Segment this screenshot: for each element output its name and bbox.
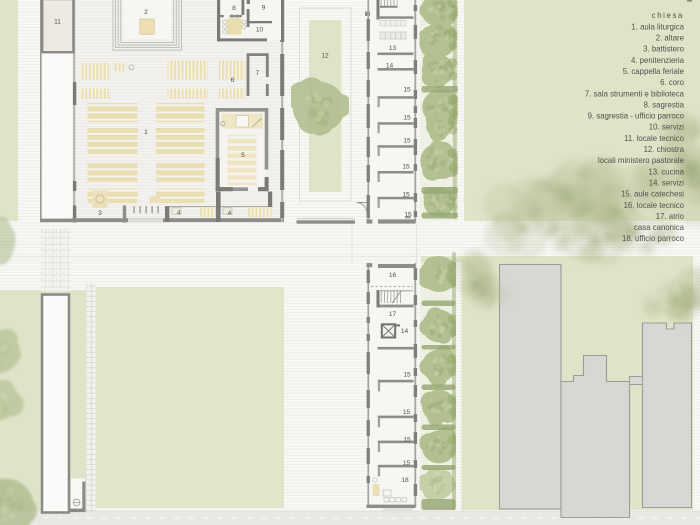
svg-text:6. coro: 6. coro <box>660 78 684 87</box>
svg-text:15: 15 <box>404 212 412 219</box>
svg-text:locali ministero pastorale: locali ministero pastorale <box>598 156 684 165</box>
svg-text:9: 9 <box>262 5 266 12</box>
svg-text:15: 15 <box>402 164 410 171</box>
svg-text:1. aula liturgica: 1. aula liturgica <box>631 22 684 31</box>
svg-text:15: 15 <box>403 115 411 122</box>
svg-text:16. locale tecnico: 16. locale tecnico <box>624 200 685 209</box>
svg-text:casa canonica: casa canonica <box>634 223 684 232</box>
svg-text:13: 13 <box>389 45 397 52</box>
svg-text:12: 12 <box>321 53 329 60</box>
svg-text:15: 15 <box>403 87 411 94</box>
svg-text:15: 15 <box>402 192 410 199</box>
svg-text:3: 3 <box>98 210 102 217</box>
svg-text:4: 4 <box>177 210 181 217</box>
svg-text:18: 18 <box>401 477 409 484</box>
svg-text:7: 7 <box>256 70 260 77</box>
svg-text:13. cucina: 13. cucina <box>648 167 684 176</box>
svg-text:18. ufficio parroco: 18. ufficio parroco <box>622 234 684 243</box>
svg-text:1: 1 <box>144 129 148 136</box>
svg-text:14. servizi: 14. servizi <box>649 178 684 187</box>
svg-text:8: 8 <box>232 5 236 12</box>
svg-text:15: 15 <box>403 436 411 443</box>
svg-text:2: 2 <box>144 9 148 16</box>
svg-text:7. sala strumenti e biblioteca: 7. sala strumenti e biblioteca <box>585 89 684 98</box>
svg-text:9. sagrestia - ufficio parroco: 9. sagrestia - ufficio parroco <box>588 111 685 120</box>
svg-text:12. chiostra: 12. chiostra <box>644 145 685 154</box>
svg-text:15: 15 <box>403 138 411 145</box>
svg-text:11. locale tecnico: 11. locale tecnico <box>624 134 684 143</box>
svg-text:5: 5 <box>241 152 245 159</box>
svg-text:10. servizi: 10. servizi <box>649 122 684 131</box>
svg-text:3. battistero: 3. battistero <box>643 44 684 53</box>
svg-text:8. sagrestia: 8. sagrestia <box>644 100 685 109</box>
svg-text:17: 17 <box>389 311 397 318</box>
svg-text:4: 4 <box>228 210 232 217</box>
svg-text:16: 16 <box>389 272 397 279</box>
svg-text:11: 11 <box>54 19 61 26</box>
svg-text:2. altare: 2. altare <box>656 33 685 42</box>
svg-text:15. aule catechesi: 15. aule catechesi <box>621 189 684 198</box>
svg-text:chiesa: chiesa <box>652 11 684 20</box>
svg-text:4. penitenzieria: 4. penitenzieria <box>631 55 684 64</box>
svg-text:5. cappella feriale: 5. cappella feriale <box>623 67 685 76</box>
svg-text:15: 15 <box>403 409 411 416</box>
svg-text:14: 14 <box>401 328 409 335</box>
svg-text:15: 15 <box>403 371 411 378</box>
svg-text:10: 10 <box>256 27 264 34</box>
svg-text:6: 6 <box>231 77 235 84</box>
svg-text:17. atrio: 17. atrio <box>656 212 685 221</box>
svg-text:15: 15 <box>403 460 411 467</box>
